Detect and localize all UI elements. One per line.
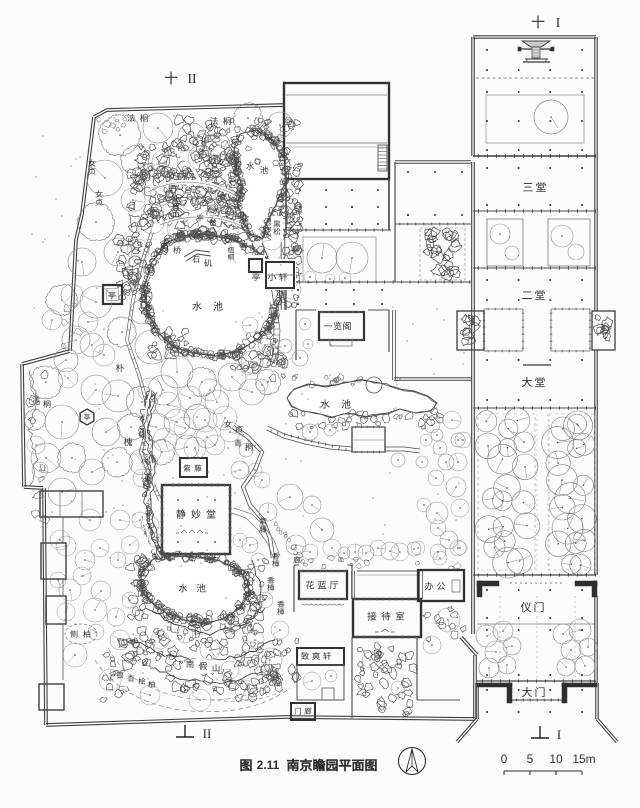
svg-text:15m: 15m xyxy=(572,752,595,766)
svg-text:2.11: 2.11 xyxy=(257,758,280,772)
svg-text:I: I xyxy=(556,16,561,31)
svg-text:II: II xyxy=(187,72,197,87)
svg-text:0: 0 xyxy=(501,752,508,766)
svg-text:5: 5 xyxy=(527,752,534,766)
svg-text:10: 10 xyxy=(549,752,563,766)
svg-text:II: II xyxy=(203,726,212,741)
svg-text:I: I xyxy=(557,727,561,742)
